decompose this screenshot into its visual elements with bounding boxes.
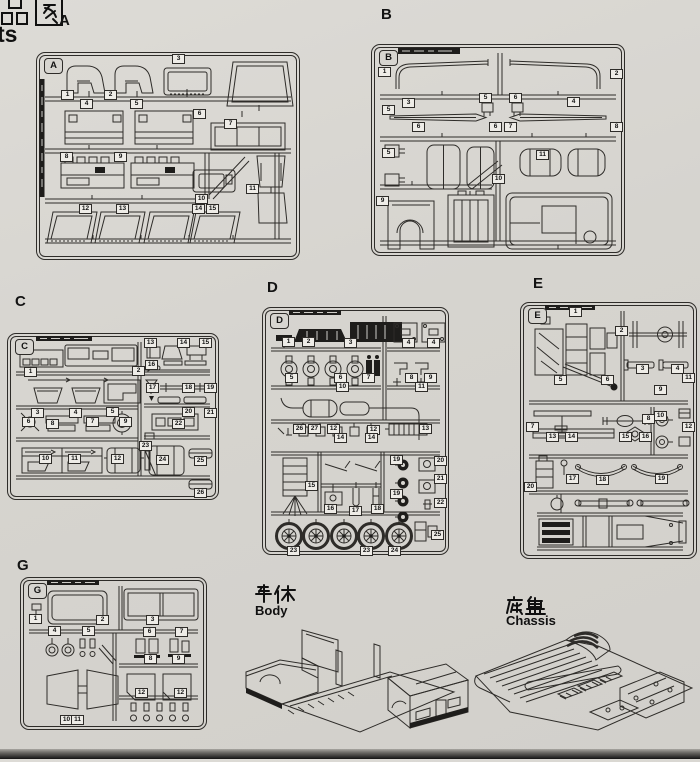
part-number-tag: 26 (293, 424, 306, 434)
part-number-tag: 13 (546, 432, 559, 442)
chassis-artwork (470, 624, 700, 744)
sprue-a-diagram: A A (36, 52, 300, 260)
part-number-tag: 21 (434, 474, 447, 484)
part-number-tag: 22 (434, 498, 447, 508)
body-caption-en: Body (255, 604, 288, 618)
part-number-tag: 7 (504, 122, 517, 132)
part-number-tag: 2 (615, 326, 628, 336)
part-number-tag: 23 (139, 441, 152, 451)
part-number-tag: 5 (285, 373, 298, 383)
part-number-tag: 5 (106, 407, 119, 417)
part-number-tag: 11 (71, 715, 84, 725)
sprue-e-diagram: E E (520, 302, 697, 559)
sprue-b-diagram: B B 123456556678 (371, 44, 625, 256)
part-number-tag: 15 (206, 204, 219, 214)
part-number-tag: 20 (182, 407, 195, 417)
part-number-tag: 5 (82, 626, 95, 636)
part-number-tag: 2 (132, 366, 145, 376)
part-number-tag: 11 (682, 373, 695, 383)
part-number-tag: 21 (204, 408, 217, 418)
part-number-tag: 10 (336, 382, 349, 392)
part-number-tag: 12 (682, 422, 695, 432)
part-number-tag: 13 (419, 424, 432, 434)
part-number-tag: 1 (378, 67, 391, 77)
part-number-tag: 3 (146, 615, 159, 625)
sprue-d-diagram: D D (262, 307, 449, 555)
part-number-tag: 19 (204, 383, 217, 393)
part-number-tag: 8 (46, 419, 59, 429)
part-number-tag: 9 (114, 152, 127, 162)
part-number-tag: 1 (569, 307, 582, 317)
part-number-tag: 18 (371, 504, 384, 514)
part-number-tag: 25 (431, 530, 444, 540)
part-number-tag: 8 (610, 122, 623, 132)
part-number-tag: 11 (415, 382, 428, 392)
part-number-tag: 10 (492, 174, 505, 184)
part-number-tag: 26 (194, 488, 207, 498)
part-number-tag: 5 (130, 99, 143, 109)
part-number-tag: 23 (287, 546, 300, 556)
part-number-tag: 12 (174, 688, 187, 698)
part-number-tag: 7 (86, 417, 99, 427)
part-number-tag: 1 (61, 90, 74, 100)
part-number-tag: 2 (610, 69, 623, 79)
part-number-tag: 16 (145, 360, 158, 370)
part-number-tag: 27 (308, 424, 321, 434)
part-number-tag: 4 (402, 338, 415, 348)
body-caption-glyphs (254, 584, 296, 604)
chassis-drawing (470, 624, 700, 749)
part-number-tag: 1 (24, 367, 37, 377)
part-number-tag: 5 (479, 93, 492, 103)
part-number-tag: 5 (554, 375, 567, 385)
body-drawing (240, 620, 475, 762)
part-number-tag: 7 (362, 373, 375, 383)
part-number-tag: 2 (302, 337, 315, 347)
part-number-tag: 3 (402, 98, 415, 108)
part-number-tag: 7 (175, 627, 188, 637)
part-number-tag: 6 (193, 109, 206, 119)
part-number-tag: 4 (69, 408, 82, 418)
sprue-a-label: A (59, 13, 70, 29)
part-number-tag: 14 (334, 433, 347, 443)
part-number-tag: 9 (376, 196, 389, 206)
part-number-tag: 4 (427, 338, 440, 348)
part-number-tag: 13 (144, 338, 157, 348)
part-number-tag: 18 (182, 383, 195, 393)
part-number-tag: 1 (29, 614, 42, 624)
part-number-tag: 17 (349, 506, 362, 516)
part-number-tag: 7 (526, 422, 539, 432)
part-number-tag: 25 (194, 456, 207, 466)
part-number-tag: 10 (654, 411, 667, 421)
scan-edge-bar (0, 749, 700, 759)
sprue-b-label: B (381, 7, 392, 23)
body-artwork (240, 620, 475, 757)
part-number-tag: 9 (119, 417, 132, 427)
part-number-tag: 4 (80, 99, 93, 109)
sprue-c-diagram: C C (7, 333, 219, 500)
header-english-partial: ts (0, 21, 17, 47)
part-number-tag: 15 (199, 338, 212, 348)
part-number-tag: 16 (324, 504, 337, 514)
part-number-tag: 15 (305, 481, 318, 491)
part-number-tag: 20 (524, 482, 537, 492)
part-number-tag: 16 (639, 432, 652, 442)
part-number-tag: 8 (60, 152, 73, 162)
part-number-tag: 3 (636, 364, 649, 374)
part-number-tag: 6 (489, 122, 502, 132)
part-number-tag: 14 (365, 433, 378, 443)
part-number-tag: 11 (68, 454, 81, 464)
part-number-tag: 1 (282, 337, 295, 347)
part-number-tag: 6 (143, 627, 156, 637)
part-number-tag: 6 (601, 375, 614, 385)
part-number-tag: 7 (224, 119, 237, 129)
part-number-tag: 18 (596, 475, 609, 485)
part-number-tag: 10 (39, 454, 52, 464)
part-number-tag: 20 (434, 456, 447, 466)
sprue-g-diagram: G G 12345678910111212 (20, 577, 207, 730)
part-number-tag: 24 (156, 455, 169, 465)
part-number-tag: 17 (146, 383, 159, 393)
part-number-tag: 6 (509, 93, 522, 103)
part-number-tag: 19 (390, 489, 403, 499)
part-number-tag: 23 (360, 546, 373, 556)
part-number-tag: 14 (192, 204, 205, 214)
sprue-c-label: C (15, 294, 26, 310)
part-number-tag: 4 (567, 97, 580, 107)
part-number-tag: 9 (654, 385, 667, 395)
sprue-g-label: G (17, 558, 29, 574)
part-number-tag: 4 (48, 626, 61, 636)
part-number-tag: 14 (177, 338, 190, 348)
part-number-tag: 12 (79, 204, 92, 214)
part-number-tag: 5 (382, 148, 395, 158)
part-number-tag: 13 (116, 204, 129, 214)
part-number-tag: 5 (382, 105, 395, 115)
part-number-tag: 24 (388, 546, 401, 556)
part-number-tag: 9 (172, 654, 185, 664)
part-number-tag: 10 (195, 194, 208, 204)
part-number-tag: 19 (390, 455, 403, 465)
part-number-tag: 12 (135, 688, 148, 698)
sprue-d-label: D (267, 280, 278, 296)
part-number-tag: 8 (144, 654, 157, 664)
part-number-tag: 19 (655, 474, 668, 484)
part-number-tag: 11 (246, 184, 259, 194)
part-number-tag: 3 (172, 54, 185, 64)
part-number-tag: 11 (536, 150, 549, 160)
part-number-tag: 6 (22, 417, 35, 427)
part-number-tag: 12 (111, 454, 124, 464)
part-number-tag: 17 (566, 474, 579, 484)
part-number-tag: 3 (344, 338, 357, 348)
sprue-e-label: E (533, 276, 543, 292)
part-number-tag: 14 (565, 432, 578, 442)
part-number-tag: 6 (412, 122, 425, 132)
part-number-tag: 15 (619, 432, 632, 442)
part-number-tag: 2 (104, 90, 117, 100)
part-number-tag: 2 (96, 615, 109, 625)
part-number-tag: 22 (172, 419, 185, 429)
